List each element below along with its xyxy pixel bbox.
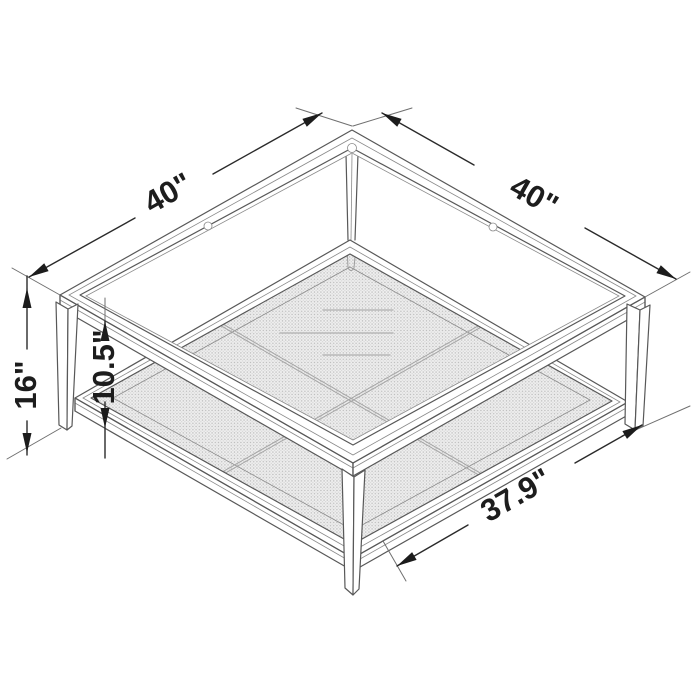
dimension-label-top-right: 40" [504,169,564,224]
arrowhead [302,113,322,127]
arrowhead [23,288,32,308]
dimension-top-left-40: 40" [12,108,352,295]
dimension-diagram: 40" 40" 16" 10.5" 37.9" [0,0,700,700]
dimension-top-right-40: 40" [353,108,690,297]
dimension-label-top-left: 40" [138,166,198,221]
arrowhead [397,552,417,566]
coffee-table-dimension-drawing: 40" 40" 16" 10.5" 37.9" [0,0,700,700]
dimension-height-16: 16" [7,276,61,459]
corner-screw [348,144,357,153]
dimension-label-height: 16" [8,360,43,409]
left-edge-screw [204,222,212,230]
arrowhead [656,265,676,279]
arrowhead [29,263,49,277]
dimension-label-clearance: 10.5" [86,329,121,404]
arrowhead [382,113,402,127]
table-leg-back [346,154,358,240]
arrowhead [23,433,32,453]
right-edge-screw [489,223,497,231]
table-leg-right [625,304,650,430]
table-leg-front [342,469,365,595]
